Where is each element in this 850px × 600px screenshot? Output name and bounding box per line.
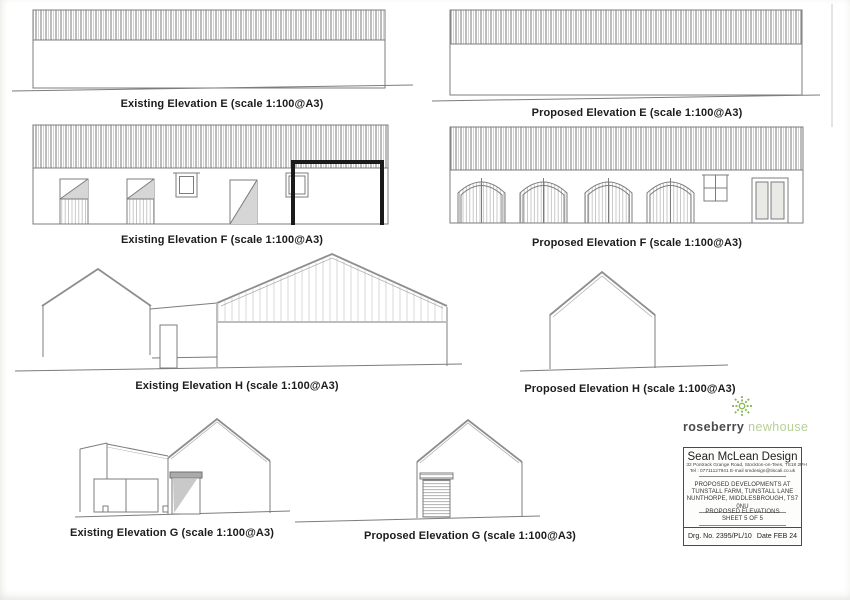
window — [173, 173, 200, 197]
project-line: PROPOSED DEVELOPMENTS AT — [684, 482, 801, 489]
drawing-number: Drg. No. 2395/PL/10 — [688, 533, 752, 540]
title-block-drawing-title-section: PROPOSED ELEVATIONS SHEET 5 OF 5 — [684, 507, 801, 527]
proposed-elevation-h-drawing — [520, 272, 728, 371]
drawing-date: Date FEB 24 — [757, 533, 797, 540]
gable-building — [42, 269, 151, 357]
title-block-project-section: PROPOSED DEVELOPMENTS AT TUNSTALL FARM, … — [684, 481, 801, 507]
ground-line — [520, 365, 728, 371]
title-block-company-section: Sean McLean Design 32 Pontrack Grange Ro… — [684, 448, 801, 481]
corrugated-roof-band — [33, 10, 385, 40]
barn — [217, 254, 447, 367]
door-lintel — [170, 472, 202, 478]
caption-proposed-elevation-g: Proposed Elevation G (scale 1:100@A3) — [320, 530, 620, 542]
ground-line — [432, 95, 820, 101]
french-doors — [752, 178, 788, 223]
proposed-elevation-g-drawing — [295, 420, 540, 522]
drawing-sheet: Existing Elevation E (scale 1:100@A3) Pr… — [0, 0, 850, 600]
lean-to — [80, 443, 168, 512]
link-section — [150, 303, 217, 368]
logo-wordmark: roseberry newhouse — [683, 420, 801, 434]
caption-proposed-elevation-e: Proposed Elevation E (scale 1:100@A3) — [487, 107, 787, 119]
window — [286, 173, 308, 197]
flower-burst-icon — [730, 394, 754, 418]
stable-door — [127, 179, 154, 224]
company-contact: Tel : 07711127941 E-mail smdesign@tiscal… — [686, 469, 798, 474]
project-line: TUNSTALL FARM, TUNSTALL LANE — [684, 489, 801, 496]
caption-existing-elevation-h: Existing Elevation H (scale 1:100@A3) — [87, 380, 387, 392]
drawing-title: PROPOSED ELEVATIONS — [684, 509, 801, 516]
caption-existing-elevation-e: Existing Elevation E (scale 1:100@A3) — [72, 98, 372, 110]
roseberry-newhouse-logo: roseberry newhouse — [683, 394, 801, 434]
four-pane-window — [702, 175, 729, 201]
door-lintel — [420, 473, 453, 479]
existing-elevation-g-drawing — [75, 419, 290, 517]
sheet-number: SHEET 5 OF 5 — [684, 516, 801, 523]
title-block-number-row: Drg. No. 2395/PL/10 Date FEB 24 — [684, 527, 801, 545]
wall — [33, 40, 385, 88]
existing-elevation-h-drawing — [15, 254, 462, 371]
wall — [450, 44, 802, 95]
divider — [699, 525, 786, 526]
corrugated-roof-band — [450, 10, 802, 44]
caption-proposed-elevation-f: Proposed Elevation F (scale 1:100@A3) — [487, 237, 787, 249]
brand-primary: roseberry — [683, 420, 744, 434]
gable-building — [168, 419, 270, 514]
ground-line — [15, 364, 462, 371]
door — [160, 325, 177, 368]
boarded-door — [423, 480, 450, 517]
stable-door — [60, 179, 88, 224]
caption-existing-elevation-f: Existing Elevation F (scale 1:100@A3) — [72, 234, 372, 246]
corrugated-roof-band — [450, 127, 803, 170]
divider — [699, 476, 786, 477]
title-block: Sean McLean Design 32 Pontrack Grange Ro… — [683, 447, 802, 546]
existing-elevation-f-drawing — [33, 125, 388, 225]
proposed-elevation-f-drawing — [450, 127, 803, 223]
door — [230, 180, 257, 224]
caption-existing-elevation-g: Existing Elevation G (scale 1:100@A3) — [22, 527, 322, 539]
brand-secondary: newhouse — [748, 420, 808, 434]
existing-elevation-e-drawing — [12, 10, 413, 91]
